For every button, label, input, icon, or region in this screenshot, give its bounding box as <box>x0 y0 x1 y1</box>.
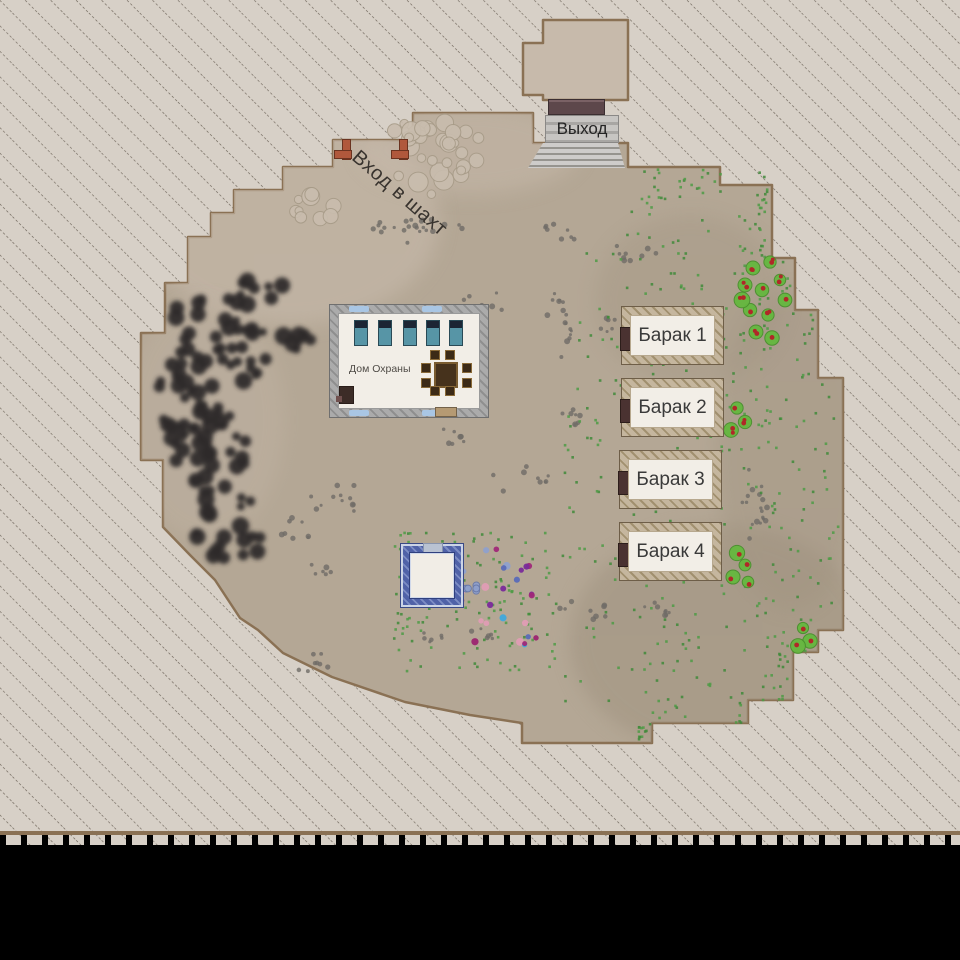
bed <box>378 320 392 346</box>
bed <box>449 320 463 346</box>
camp-map-screen: Выход Вход в шахт Дом Охраны <box>0 0 960 960</box>
void-area <box>0 845 960 960</box>
barrack-label: Барак 1 <box>638 325 706 347</box>
blue-building-interior <box>410 553 454 598</box>
bed <box>403 320 417 346</box>
table <box>434 362 458 388</box>
bed <box>354 320 368 346</box>
barrack-label: Барак 4 <box>636 541 704 563</box>
exit-door <box>548 99 605 115</box>
chair <box>445 350 455 360</box>
mine-gate-post-left <box>334 139 354 159</box>
stove <box>339 386 354 404</box>
guard-house-interior: Дом Охраны <box>338 313 480 409</box>
window <box>422 306 442 312</box>
blue-building[interactable] <box>401 544 463 607</box>
guard-house-door[interactable] <box>435 407 457 417</box>
window <box>349 410 369 416</box>
exit-stairs[interactable] <box>528 143 625 168</box>
map-bottom-teeth <box>0 835 960 845</box>
mine-gate-post-right <box>391 139 411 159</box>
chair <box>462 363 472 373</box>
chair <box>445 386 455 396</box>
bed <box>426 320 440 346</box>
barrack-label: Барак 3 <box>636 469 704 491</box>
window <box>349 306 369 312</box>
chair <box>430 386 440 396</box>
chair <box>430 350 440 360</box>
barrack-4[interactable]: Барак 4 <box>619 522 722 581</box>
camp-map <box>0 0 960 846</box>
blue-building-door[interactable] <box>423 543 443 553</box>
barrack-label: Барак 2 <box>638 397 706 419</box>
barrack-2[interactable]: Барак 2 <box>621 378 724 437</box>
chair <box>462 378 472 388</box>
exit-label: Выход <box>557 119 608 139</box>
chair <box>421 363 431 373</box>
guard-house[interactable]: Дом Охраны <box>329 304 489 418</box>
barrack-1[interactable]: Барак 1 <box>621 306 724 365</box>
barrack-3[interactable]: Барак 3 <box>619 450 722 509</box>
exit-sign[interactable]: Выход <box>545 115 619 143</box>
guard-house-label: Дом Охраны <box>349 363 411 375</box>
